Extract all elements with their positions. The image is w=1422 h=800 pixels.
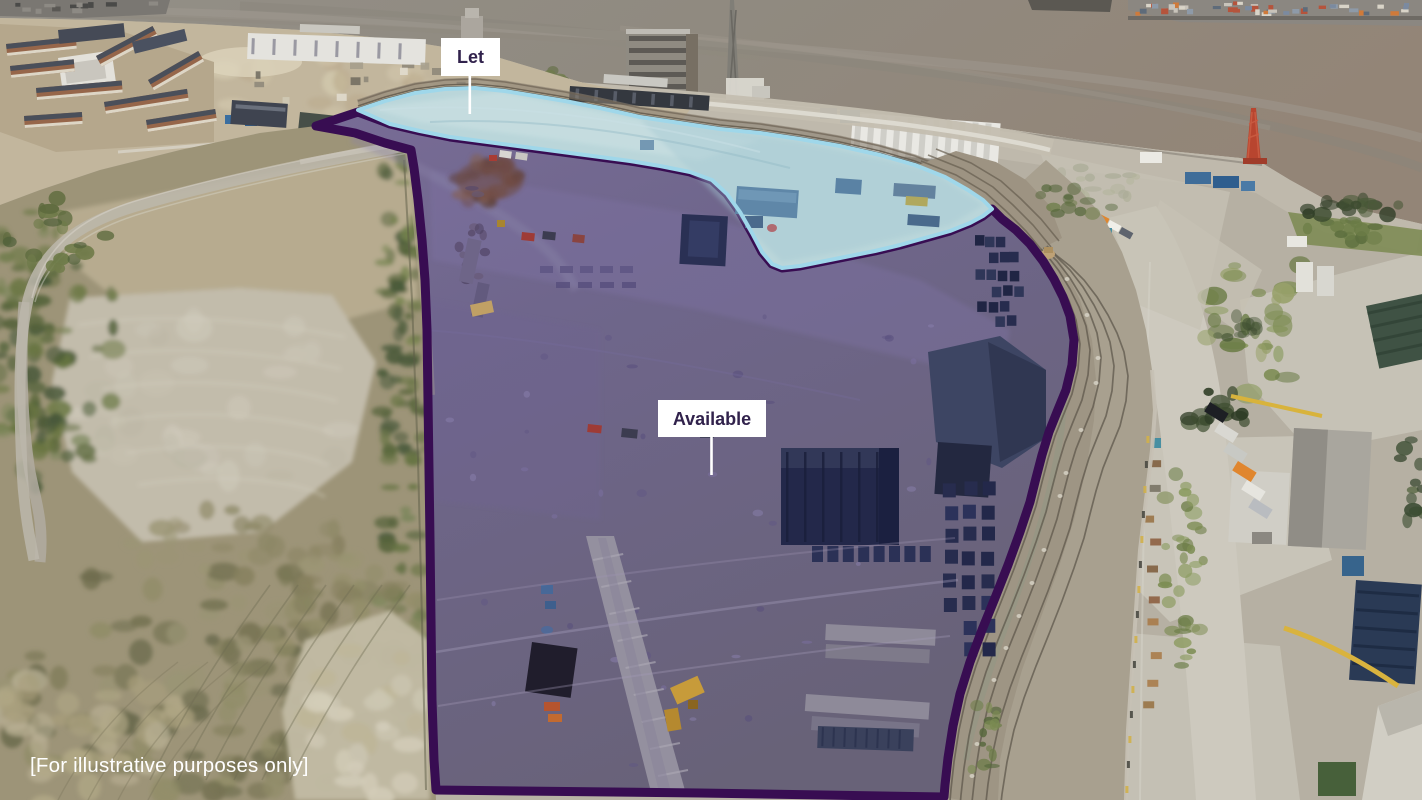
svg-text:[For illustrative purposes onl: [For illustrative purposes only] <box>30 754 309 777</box>
svg-text:Available: Available <box>673 409 751 429</box>
svg-text:Let: Let <box>457 47 484 67</box>
